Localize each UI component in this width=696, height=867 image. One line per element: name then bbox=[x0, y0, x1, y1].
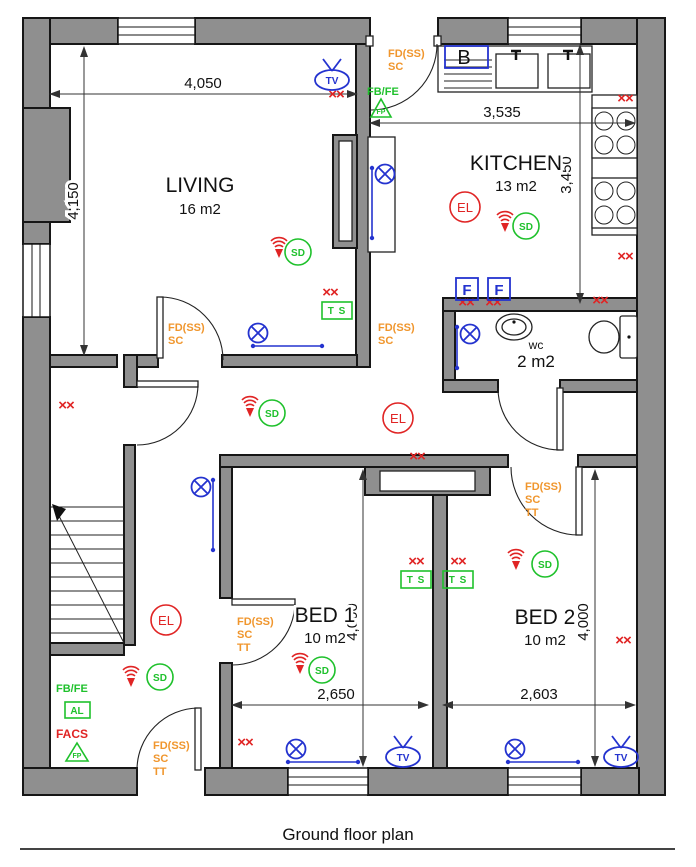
smoke-detector: SD bbox=[292, 654, 335, 683]
fd-text: FD(SS) bbox=[153, 740, 190, 752]
socket-icon: ×× bbox=[617, 90, 634, 107]
boiler-label: B bbox=[457, 47, 470, 69]
tv-point: TV bbox=[604, 736, 638, 767]
el-text: EL bbox=[158, 613, 174, 628]
bed2-door bbox=[511, 467, 582, 535]
title-text: Ground floor plan bbox=[282, 825, 413, 844]
smoke-detector: SD bbox=[508, 550, 558, 577]
windows bbox=[23, 18, 581, 795]
tv-text: TV bbox=[326, 76, 339, 87]
living-window-left bbox=[23, 244, 50, 317]
dim-living-width: 4,050 bbox=[184, 75, 222, 92]
fd-text: FD(SS) bbox=[388, 48, 425, 60]
sd-text: SD bbox=[519, 222, 533, 233]
staircase bbox=[51, 504, 124, 643]
ceiling-light bbox=[455, 325, 480, 371]
sc-text: SC bbox=[237, 629, 252, 641]
sd-text: SD bbox=[291, 248, 305, 259]
fb-fe-text: FB/FE bbox=[56, 683, 88, 695]
socket-icon: ×× bbox=[409, 448, 426, 465]
hall-door bbox=[137, 381, 198, 445]
el-text: EL bbox=[457, 200, 473, 215]
fp-text: FP bbox=[73, 753, 82, 760]
socket-icon: ×× bbox=[58, 397, 75, 414]
smoke-detector: SD bbox=[123, 664, 173, 690]
emergency-lights: EL EL EL bbox=[151, 192, 480, 635]
emergency-light: EL bbox=[383, 403, 413, 433]
ts-text: T S bbox=[449, 575, 468, 586]
facs-text: FACS bbox=[56, 727, 88, 741]
hob bbox=[592, 178, 637, 228]
smoke-detector: SD bbox=[497, 212, 539, 239]
floor-plan-svg: B 4,050 4,150 3,535 3,450 2,650 2,603 4,… bbox=[0, 0, 696, 867]
wc-area: 2 m2 bbox=[517, 352, 555, 371]
fp-text: FP bbox=[377, 109, 386, 116]
kitchen-area: 13 m2 bbox=[495, 178, 537, 195]
hob bbox=[592, 108, 637, 158]
appliance-symbols: F F bbox=[456, 278, 510, 300]
bed2-window bbox=[508, 768, 581, 795]
kitchen-window-top bbox=[508, 18, 581, 44]
fire-door-label: FD(SS) SC TT bbox=[153, 740, 190, 778]
fire-door-label: FD(SS) SC bbox=[388, 48, 425, 73]
emergency-light: EL bbox=[151, 605, 181, 635]
fire-door-label: FD(SS) SC TT bbox=[525, 481, 562, 519]
f-text: F bbox=[494, 282, 503, 299]
socket-icon: ×× bbox=[615, 632, 632, 649]
wc-door bbox=[498, 388, 563, 450]
living-window-top bbox=[118, 18, 195, 44]
sc-text: SC bbox=[525, 494, 540, 506]
thermostat: T S bbox=[322, 302, 352, 319]
al-text: AL bbox=[70, 706, 83, 717]
kitchen-label: KITCHEN bbox=[470, 152, 562, 175]
tv-text: TV bbox=[397, 753, 410, 764]
dim-living-depth: 4,150 bbox=[65, 182, 82, 220]
bed1-window bbox=[288, 768, 368, 795]
emergency-light: EL bbox=[450, 192, 480, 222]
ts-text: T S bbox=[328, 306, 347, 317]
fb-fe-text: FB/FE bbox=[367, 86, 399, 98]
tv-text: TV bbox=[615, 753, 628, 764]
dim-bed2-depth: 4,000 bbox=[575, 603, 592, 641]
smoke-detector: SD bbox=[242, 397, 285, 426]
fb-fe-point: FB/FE FP bbox=[367, 86, 399, 117]
dim-bed2-width: 2,603 bbox=[520, 686, 558, 703]
socket-icon: ×× bbox=[237, 734, 254, 751]
fd-text: FD(SS) bbox=[525, 481, 562, 493]
f-text: F bbox=[462, 282, 471, 299]
fire-door-label: FD(SS) SC bbox=[168, 322, 205, 347]
ceiling-light bbox=[192, 478, 216, 553]
sd-text: SD bbox=[153, 673, 167, 684]
thermostat: T S bbox=[401, 571, 431, 588]
socket-icon: ×× bbox=[322, 284, 339, 301]
smoke-detector: SD bbox=[271, 238, 311, 265]
sd-text: SD bbox=[538, 560, 552, 571]
dim-bed1-width: 2,650 bbox=[317, 686, 355, 703]
sc-text: SC bbox=[168, 335, 183, 347]
tt-text: TT bbox=[237, 642, 251, 654]
sc-text: SC bbox=[388, 61, 403, 73]
dim-kitchen-width: 3,535 bbox=[483, 104, 521, 121]
living-area: 16 m2 bbox=[179, 201, 221, 218]
fd-text: FD(SS) bbox=[168, 322, 205, 334]
ceiling-light bbox=[249, 324, 325, 349]
living-label: LIVING bbox=[166, 174, 235, 197]
fire-door-label: FD(SS) SC TT bbox=[237, 616, 274, 654]
wc-label: wc bbox=[528, 338, 544, 352]
ceiling-light bbox=[506, 740, 581, 765]
socket-icon: ×× bbox=[592, 292, 609, 309]
tv-point: TV bbox=[386, 736, 420, 767]
sc-text: SC bbox=[378, 335, 393, 347]
socket-icon: ×× bbox=[408, 553, 425, 570]
sd-text: SD bbox=[315, 666, 329, 677]
tv-point: TV bbox=[315, 59, 349, 90]
bed1-label: BED 1 bbox=[295, 604, 356, 627]
toilet-bowl bbox=[589, 321, 619, 353]
fb-fe-point: FB/FE AL FACS FP bbox=[56, 683, 90, 761]
drawing-title: Ground floor plan bbox=[20, 825, 675, 849]
front-door bbox=[137, 708, 201, 770]
fd-text: FD(SS) bbox=[237, 616, 274, 628]
socket-icon: ×× bbox=[450, 553, 467, 570]
tt-text: TT bbox=[153, 766, 167, 778]
tt-text: TT bbox=[525, 507, 539, 519]
ts-text: T S bbox=[407, 575, 426, 586]
bed2-label: BED 2 bbox=[515, 606, 576, 629]
fire-door-label: FD(SS) SC bbox=[378, 322, 415, 347]
bed1-area: 10 m2 bbox=[304, 630, 346, 647]
kitchen-fixtures: B bbox=[368, 46, 637, 252]
fd-text: FD(SS) bbox=[378, 322, 415, 334]
el-text: EL bbox=[390, 411, 406, 426]
sd-text: SD bbox=[265, 409, 279, 420]
sc-text: SC bbox=[153, 753, 168, 765]
ceiling-light bbox=[286, 740, 360, 765]
bed2-area: 10 m2 bbox=[524, 632, 566, 649]
socket-icon: ×× bbox=[617, 248, 634, 265]
floor-plan-page: B 4,050 4,150 3,535 3,450 2,650 2,603 4,… bbox=[0, 0, 696, 867]
